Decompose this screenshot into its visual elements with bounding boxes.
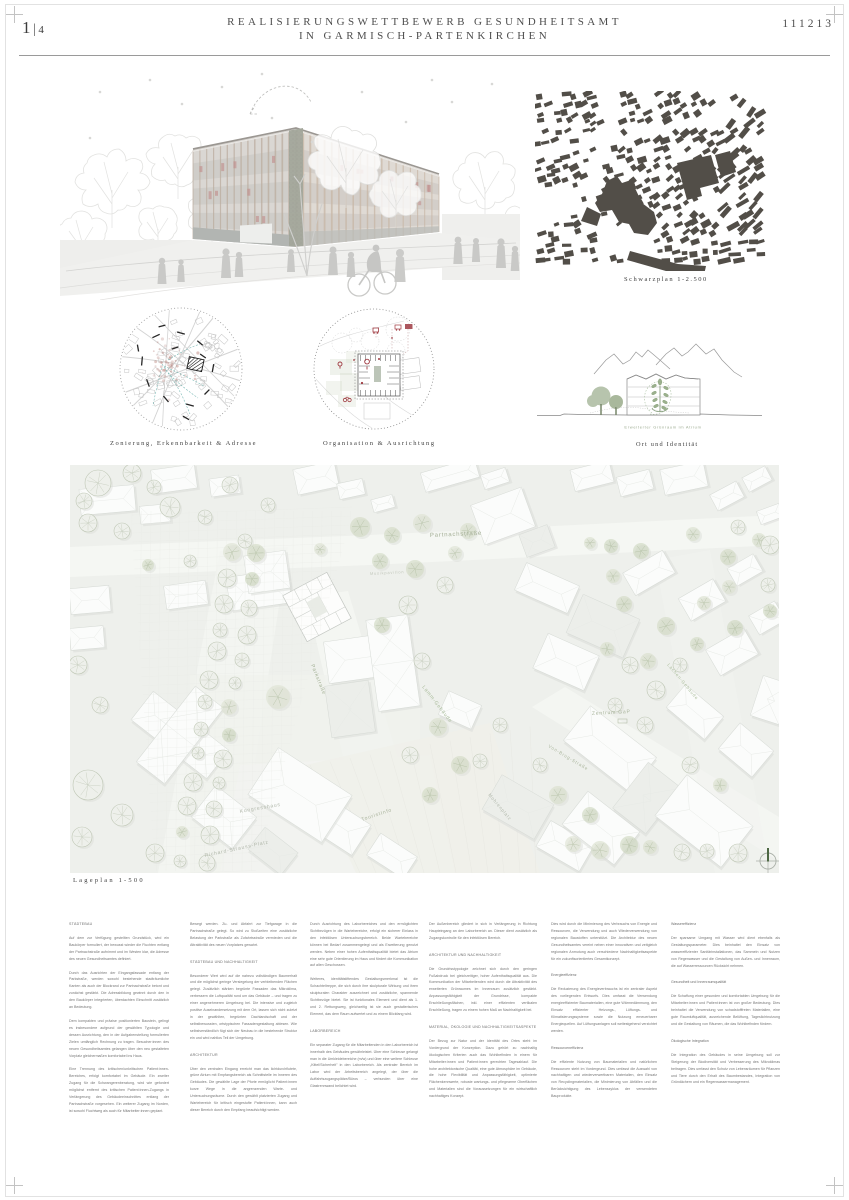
svg-text:Erweiterter Grünraum im Atrium: Erweiterter Grünraum im Atrium: [624, 425, 701, 430]
